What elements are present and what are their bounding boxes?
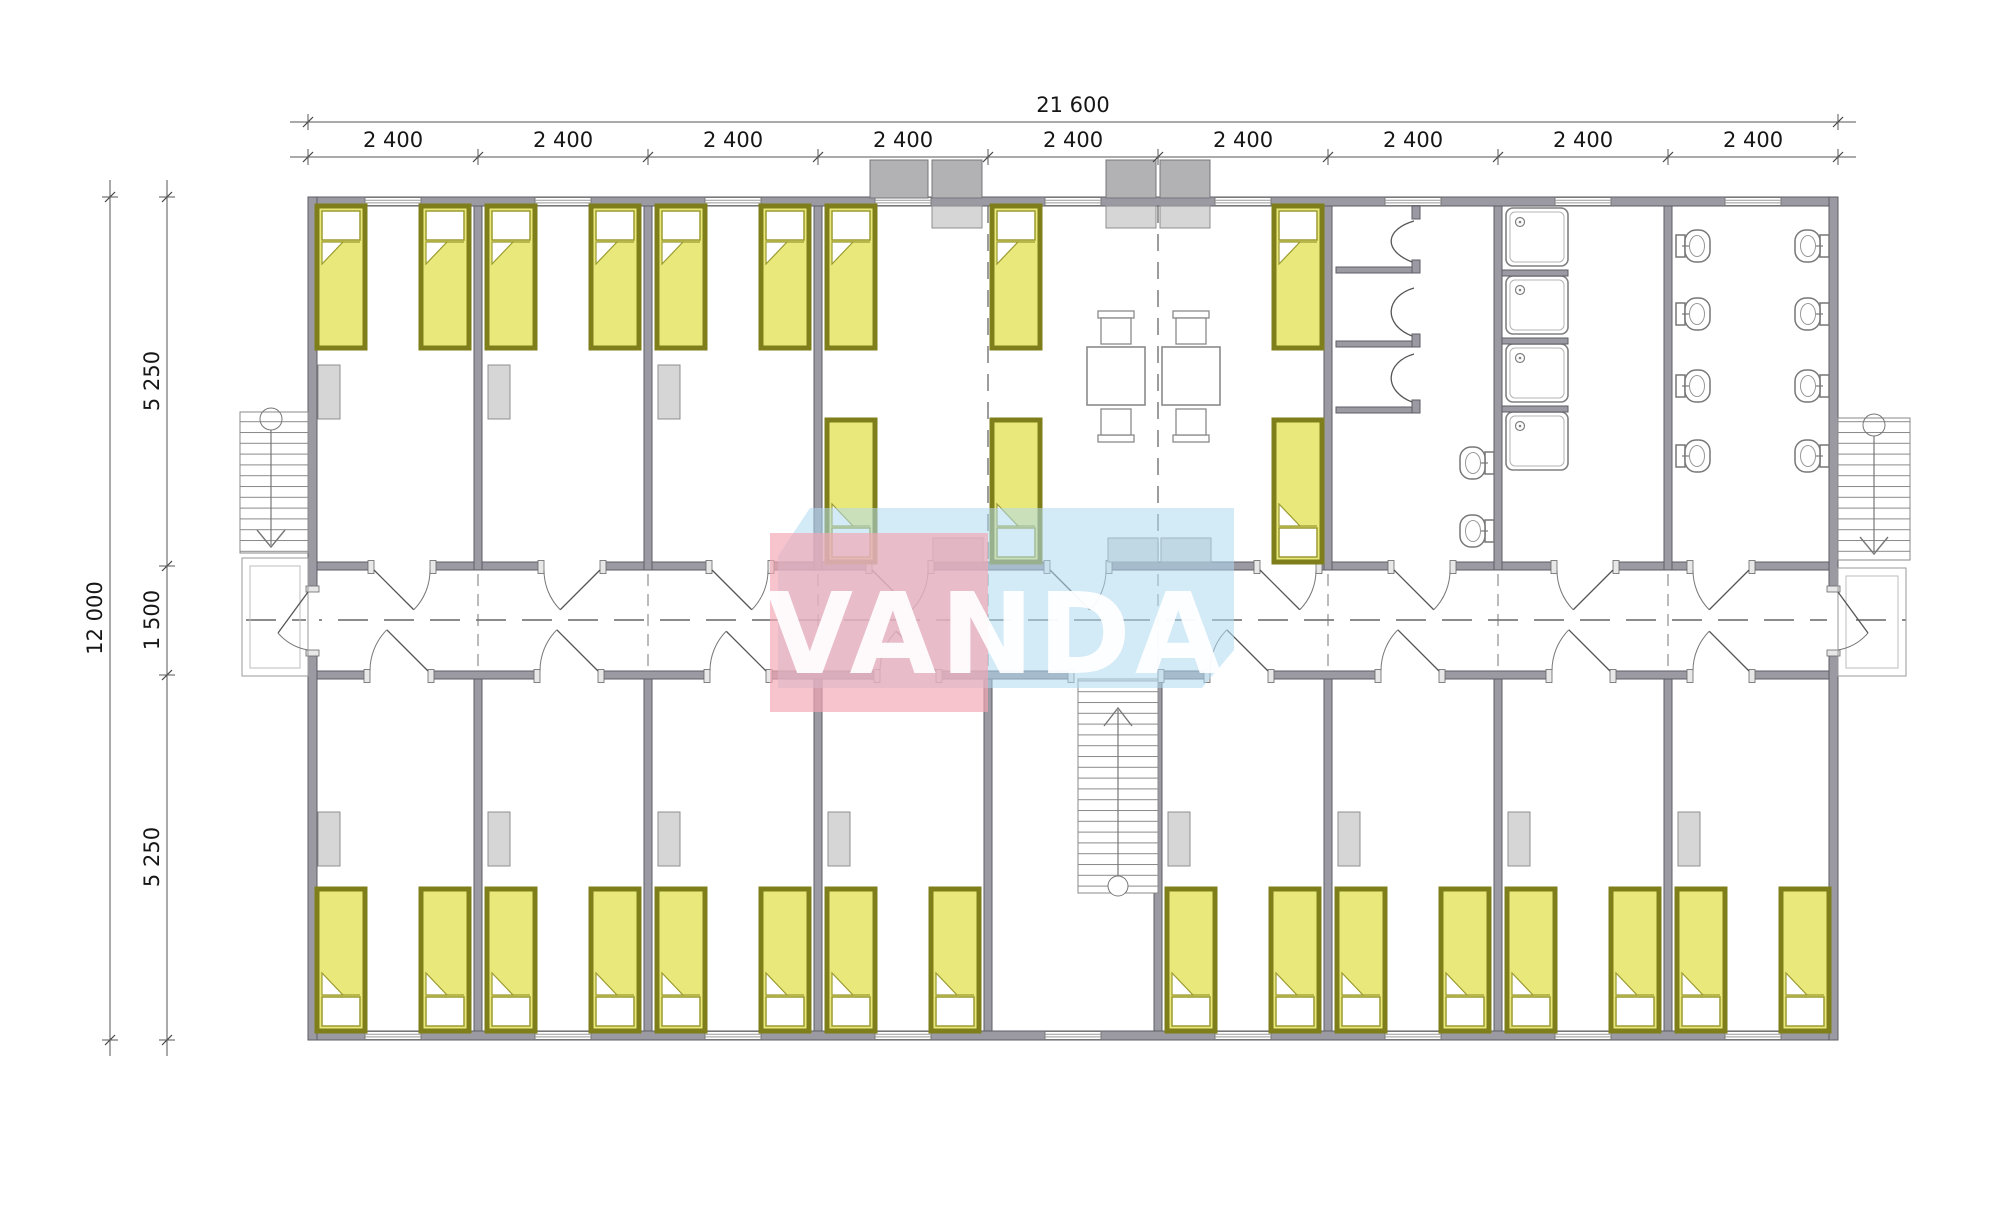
bed bbox=[591, 206, 639, 348]
window bbox=[1725, 1032, 1781, 1040]
door-jamb bbox=[598, 670, 604, 683]
partition-wall bbox=[984, 679, 992, 1031]
door-opening bbox=[1394, 561, 1450, 573]
window bbox=[535, 1032, 591, 1040]
door-leaf bbox=[387, 630, 428, 671]
toilet bbox=[1795, 440, 1829, 472]
partition-wall bbox=[1664, 679, 1672, 1031]
nightstand bbox=[1338, 812, 1360, 866]
window bbox=[875, 1032, 931, 1040]
door-leaf bbox=[1573, 570, 1613, 610]
door-jamb bbox=[1388, 561, 1394, 574]
bed bbox=[1337, 889, 1385, 1031]
dim-label-bay-8: 2 400 bbox=[1553, 128, 1613, 152]
dim-label-bay-7: 2 400 bbox=[1383, 128, 1443, 152]
window bbox=[535, 198, 591, 206]
door-swing bbox=[1552, 630, 1569, 671]
door-jamb bbox=[1610, 670, 1616, 683]
window bbox=[705, 1032, 761, 1040]
door-swing bbox=[1434, 570, 1450, 610]
dim-label-lower-depth: 5 250 bbox=[140, 827, 164, 887]
dim-label-bay-5: 2 400 bbox=[1043, 128, 1103, 152]
vent-block bbox=[932, 160, 982, 198]
bed bbox=[827, 206, 875, 348]
shower-tray bbox=[1506, 208, 1568, 266]
door-leaf bbox=[1260, 570, 1300, 610]
door-jamb bbox=[1450, 561, 1456, 574]
bed bbox=[1441, 889, 1489, 1031]
door-leaf bbox=[1394, 570, 1434, 610]
door-jamb bbox=[600, 561, 606, 574]
door-jamb bbox=[1749, 670, 1755, 683]
door-jamb bbox=[368, 561, 374, 574]
door-jamb bbox=[1254, 561, 1260, 574]
shower-divider bbox=[1336, 341, 1416, 347]
exterior-door-right-swing bbox=[1838, 633, 1868, 650]
stairs-left bbox=[240, 412, 308, 553]
partition-wall bbox=[1324, 679, 1332, 1031]
window bbox=[1045, 1032, 1101, 1040]
shower-divider bbox=[1336, 407, 1416, 413]
window bbox=[1045, 198, 1101, 206]
door-opening bbox=[1557, 561, 1613, 573]
toilet bbox=[1676, 370, 1710, 402]
watermark-text: VANDA bbox=[766, 570, 1225, 700]
door-swing bbox=[414, 570, 430, 610]
dim-label-corridor-width: 1 500 bbox=[140, 590, 164, 650]
door-opening bbox=[370, 670, 428, 682]
vent-block bbox=[1160, 160, 1210, 198]
toilet bbox=[1676, 230, 1710, 262]
tray-divider bbox=[1502, 270, 1568, 276]
bed bbox=[1271, 889, 1319, 1031]
landing-left bbox=[242, 558, 308, 676]
bed bbox=[317, 206, 365, 348]
door-leaf bbox=[560, 570, 600, 610]
partition-wall bbox=[474, 206, 482, 570]
door-jamb bbox=[1687, 670, 1693, 683]
door-leaf bbox=[726, 631, 766, 671]
dim-label-bay-2: 2 400 bbox=[533, 128, 593, 152]
vent-block bbox=[870, 160, 928, 198]
window bbox=[365, 198, 421, 206]
table bbox=[1087, 347, 1145, 405]
dim-label-bay-4: 2 400 bbox=[873, 128, 933, 152]
dim-label-bay-9: 2 400 bbox=[1723, 128, 1783, 152]
toilet bbox=[1460, 515, 1494, 547]
door-leaf bbox=[557, 630, 598, 671]
shower-post bbox=[1412, 334, 1420, 347]
partition-wall bbox=[1664, 206, 1672, 570]
door-jamb bbox=[1546, 670, 1552, 683]
door-swing bbox=[1693, 570, 1709, 610]
exterior-door-right-leaf bbox=[1838, 592, 1868, 633]
bed bbox=[657, 889, 705, 1031]
bed bbox=[1274, 420, 1322, 562]
toilet bbox=[1676, 440, 1710, 472]
bed bbox=[591, 889, 639, 1031]
shower-door bbox=[1391, 354, 1414, 402]
vent-block bbox=[1106, 160, 1156, 198]
window bbox=[1215, 198, 1271, 206]
partition-wall bbox=[474, 679, 482, 1031]
door-jamb bbox=[1687, 561, 1693, 574]
nightstand bbox=[658, 365, 680, 419]
nightstand bbox=[1678, 812, 1700, 866]
landing-left-inner bbox=[250, 566, 300, 668]
door-leaf bbox=[1398, 630, 1439, 671]
door-jamb bbox=[1749, 561, 1755, 574]
toilet bbox=[1676, 298, 1710, 330]
partition-wall bbox=[644, 679, 652, 1031]
chair bbox=[1173, 311, 1209, 344]
floor-plan-drawing: VANDA 21 600 2 400 2 400 2 400 2 400 2 4… bbox=[0, 0, 2000, 1219]
door-jamb bbox=[534, 670, 540, 683]
door-jamb bbox=[704, 670, 710, 683]
landing-right bbox=[1838, 568, 1906, 676]
shower-post bbox=[1412, 400, 1420, 413]
shower-post bbox=[1412, 260, 1420, 273]
door-swing bbox=[540, 630, 557, 671]
exterior-door-left-swing bbox=[278, 633, 308, 650]
bed bbox=[761, 889, 809, 1031]
window bbox=[875, 198, 931, 206]
toilet bbox=[1795, 298, 1829, 330]
partition-wall bbox=[814, 679, 822, 1031]
door-swing bbox=[1693, 631, 1709, 671]
toilet bbox=[1795, 370, 1829, 402]
door-opening bbox=[1381, 670, 1439, 682]
window bbox=[1385, 198, 1441, 206]
bed bbox=[1274, 206, 1322, 348]
partition-wall bbox=[644, 206, 652, 570]
shower-divider bbox=[1336, 267, 1416, 273]
door-opening bbox=[1552, 670, 1610, 682]
bed bbox=[487, 206, 535, 348]
door-jamb bbox=[1439, 670, 1445, 683]
nightstand bbox=[488, 365, 510, 419]
partition-wall bbox=[1324, 206, 1332, 570]
toilet bbox=[1795, 230, 1829, 262]
door-swing bbox=[1557, 570, 1573, 610]
shower-door bbox=[1391, 288, 1414, 336]
shower-tray bbox=[1506, 344, 1568, 402]
door-jamb bbox=[1375, 670, 1381, 683]
chair bbox=[1098, 311, 1134, 344]
shower-post bbox=[1412, 206, 1420, 219]
bed bbox=[487, 889, 535, 1031]
dim-label-upper-depth: 5 250 bbox=[140, 351, 164, 411]
shower-tray bbox=[1506, 412, 1568, 470]
tray-divider bbox=[1502, 338, 1568, 344]
chair bbox=[1098, 409, 1134, 442]
nightstand bbox=[318, 365, 340, 419]
landing-right-inner bbox=[1846, 576, 1898, 668]
door-jamb bbox=[1613, 561, 1619, 574]
door-jamb bbox=[1268, 670, 1274, 683]
bed bbox=[1507, 889, 1555, 1031]
door-swing bbox=[370, 630, 387, 671]
bed bbox=[421, 889, 469, 1031]
door-opening bbox=[374, 561, 430, 573]
nightstand bbox=[1168, 812, 1190, 866]
floor-plan-canvas: VANDA 21 600 2 400 2 400 2 400 2 400 2 4… bbox=[0, 0, 2000, 1219]
chair bbox=[1173, 409, 1209, 442]
bed bbox=[761, 206, 809, 348]
bed bbox=[1781, 889, 1829, 1031]
bed bbox=[421, 206, 469, 348]
door-opening bbox=[710, 670, 766, 682]
window bbox=[705, 198, 761, 206]
cabinet bbox=[1106, 206, 1156, 228]
window bbox=[1555, 198, 1611, 206]
shower-door bbox=[1391, 221, 1414, 262]
door-leaf bbox=[1709, 570, 1749, 610]
dim-label-bay-1: 2 400 bbox=[363, 128, 423, 152]
door-opening bbox=[540, 670, 598, 682]
door-swing bbox=[710, 631, 726, 671]
door-jamb bbox=[1551, 561, 1557, 574]
door-jamb bbox=[364, 670, 370, 683]
door-leaf bbox=[374, 570, 414, 610]
window bbox=[1725, 198, 1781, 206]
cabinet bbox=[932, 206, 982, 228]
partition-wall bbox=[1494, 206, 1502, 570]
door-swing bbox=[1300, 570, 1316, 610]
door-opening bbox=[544, 561, 600, 573]
nightstand bbox=[488, 812, 510, 866]
door-leaf bbox=[712, 570, 752, 610]
tray-divider bbox=[1502, 406, 1568, 412]
door-leaf bbox=[1709, 631, 1749, 671]
toilet bbox=[1460, 447, 1494, 479]
bed bbox=[1677, 889, 1725, 1031]
dim-label-overall-width: 21 600 bbox=[1036, 93, 1109, 117]
door-jamb bbox=[430, 561, 436, 574]
bed bbox=[992, 206, 1040, 348]
table bbox=[1162, 347, 1220, 405]
cabinet bbox=[1160, 206, 1210, 228]
bed bbox=[931, 889, 979, 1031]
dim-label-overall-height: 12 000 bbox=[83, 581, 107, 654]
door-jamb bbox=[538, 561, 544, 574]
door-opening bbox=[1693, 670, 1749, 682]
door-jamb bbox=[706, 561, 712, 574]
stairs-interior-start-circle bbox=[1108, 876, 1128, 896]
watermark: VANDA bbox=[766, 508, 1234, 712]
bed bbox=[657, 206, 705, 348]
bed bbox=[1167, 889, 1215, 1031]
dim-label-bay-6: 2 400 bbox=[1213, 128, 1273, 152]
exterior-door-left-leaf bbox=[278, 592, 308, 633]
bed bbox=[1611, 889, 1659, 1031]
window bbox=[365, 1032, 421, 1040]
door-opening bbox=[712, 561, 768, 573]
door-swing bbox=[1381, 630, 1398, 671]
dim-label-bay-3: 2 400 bbox=[703, 128, 763, 152]
door-opening bbox=[1693, 561, 1749, 573]
partition-wall bbox=[1494, 679, 1502, 1031]
nightstand bbox=[1508, 812, 1530, 866]
window bbox=[1555, 1032, 1611, 1040]
window bbox=[1385, 1032, 1441, 1040]
shower-tray bbox=[1506, 276, 1568, 334]
door-jamb bbox=[428, 670, 434, 683]
bed bbox=[317, 889, 365, 1031]
door-swing bbox=[544, 570, 560, 610]
nightstand bbox=[658, 812, 680, 866]
nightstand bbox=[318, 812, 340, 866]
bed bbox=[827, 889, 875, 1031]
nightstand bbox=[828, 812, 850, 866]
door-leaf bbox=[1569, 630, 1610, 671]
window bbox=[1215, 1032, 1271, 1040]
